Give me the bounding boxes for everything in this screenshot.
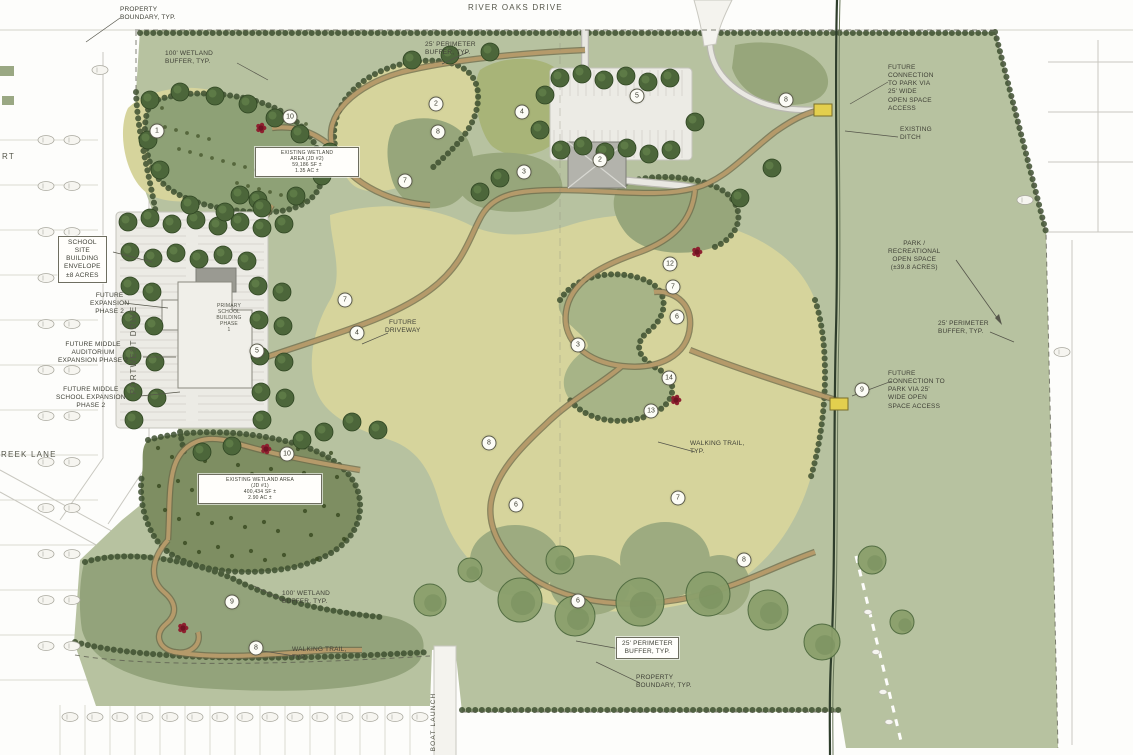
label-primary-school-building: PRIMARYSCHOOL BUILDINGPHASE 1: [210, 303, 248, 333]
callout-future-connection-mid: FUTURECONNECTION TO PARK VIA 25'WIDE OPE…: [888, 370, 945, 411]
callout-perimeter-buffer-bottom: 25' PERIMETERBUFFER, TYP.: [616, 637, 679, 659]
keynote-marker: 8: [737, 553, 752, 568]
keynote-marker: 7: [671, 491, 686, 506]
keynote-marker: 8: [249, 641, 264, 656]
callout-future-expansion: FUTUREEXPANSION PHASE 2: [90, 292, 129, 316]
callout-future-middle-auditorium: FUTURE MIDDLEAUDITORIUM EXPANSION PHASE …: [58, 341, 128, 365]
callout-park-open-space: PARK /RECREATIONAL OPEN SPACE(±39.8 ACRE…: [888, 240, 940, 273]
callout-property-boundary-top: PROPERTYBOUNDARY, TYP.: [120, 6, 176, 22]
keynote-marker: 3: [517, 165, 532, 180]
offsite-green-fragment: [0, 66, 14, 76]
street-portwest-drive: PORTWEST DRIVE: [129, 306, 139, 395]
site-plan-map: [0, 0, 1133, 755]
keynote-marker: 3: [571, 338, 586, 353]
keynote-marker: 2: [429, 97, 444, 112]
callout-walking-trail-bottom: WALKING TRAIL,TYP.: [292, 646, 346, 662]
keynote-marker: 4: [515, 105, 530, 120]
keynote-marker: 9: [855, 383, 870, 398]
keynote-marker: 2: [593, 153, 608, 168]
keynote-marker: 6: [670, 310, 685, 325]
keynote-marker: 14: [662, 371, 677, 386]
callout-walking-trail-mid: WALKING TRAIL,TYP.: [690, 440, 744, 456]
callout-school-site-envelope: SCHOOLSITE BUILDINGENVELOPE ±8 ACRES: [58, 236, 107, 283]
keynote-marker: 6: [571, 594, 586, 609]
callout-perimeter-buffer-top: 25' PERIMETERBUFFER, TYP.: [425, 41, 476, 57]
keynote-marker: 4: [350, 326, 365, 341]
callout-existing-wetland-area-1: EXISTING WETLAND AREA(JD #1) 400,434 SF …: [198, 474, 322, 504]
callout-existing-wetland-area-2: EXISTING WETLANDAREA (JD #2) 59,186 SF ±…: [255, 147, 359, 177]
keynote-marker: 5: [630, 89, 645, 104]
keynote-marker: 7: [398, 174, 413, 189]
callout-property-boundary-bottom: PROPERTYBOUNDARY, TYP.: [636, 674, 692, 690]
street-creek-lane: CREEK LANE: [0, 450, 57, 460]
callout-existing-ditch: EXISTINGDITCH: [900, 126, 932, 142]
callout-future-driveway: FUTUREDRIVEWAY: [385, 319, 421, 335]
site-master-plan: PROPERTYBOUNDARY, TYP. RIVER OAKS DRIVE …: [0, 0, 1133, 755]
keynote-marker: 10: [283, 110, 298, 125]
keynote-marker: 9: [225, 595, 240, 610]
keynote-marker: 13: [644, 404, 659, 419]
culvert-crossing: [814, 104, 832, 116]
keynote-marker: 10: [280, 447, 295, 462]
keynote-marker: 7: [666, 280, 681, 295]
keynote-marker: 8: [482, 436, 497, 451]
culvert-crossing: [830, 398, 848, 410]
street-river-oaks-drive: RIVER OAKS DRIVE: [468, 3, 563, 13]
street-court-fragment: RT: [2, 152, 15, 162]
street-boat-launch: BOAT LAUNCH: [430, 693, 438, 752]
callout-future-middle-school: FUTURE MIDDLESCHOOL EXPANSION PHASE 2: [56, 386, 126, 410]
keynote-marker: 5: [250, 344, 265, 359]
keynote-marker: 6: [509, 498, 524, 513]
callout-perimeter-buffer-right: 25' PERIMETERBUFFER, TYP.: [938, 320, 989, 336]
keynote-marker: 1: [150, 124, 165, 139]
callout-wetland-buffer-top: 100' WETLANDBUFFER, TYP.: [165, 50, 213, 66]
keynote-marker: 8: [779, 93, 794, 108]
keynote-marker: 12: [663, 257, 678, 272]
offsite-green-fragment: [2, 96, 14, 105]
keynote-marker: 8: [431, 125, 446, 140]
callout-future-connection-top: FUTURECONNECTION TO PARK VIA25' WIDE OPE…: [888, 64, 934, 113]
keynote-marker: 7: [338, 293, 353, 308]
callout-wetland-buffer-bottom: 100' WETLANDBUFFER, TYP.: [282, 590, 330, 606]
